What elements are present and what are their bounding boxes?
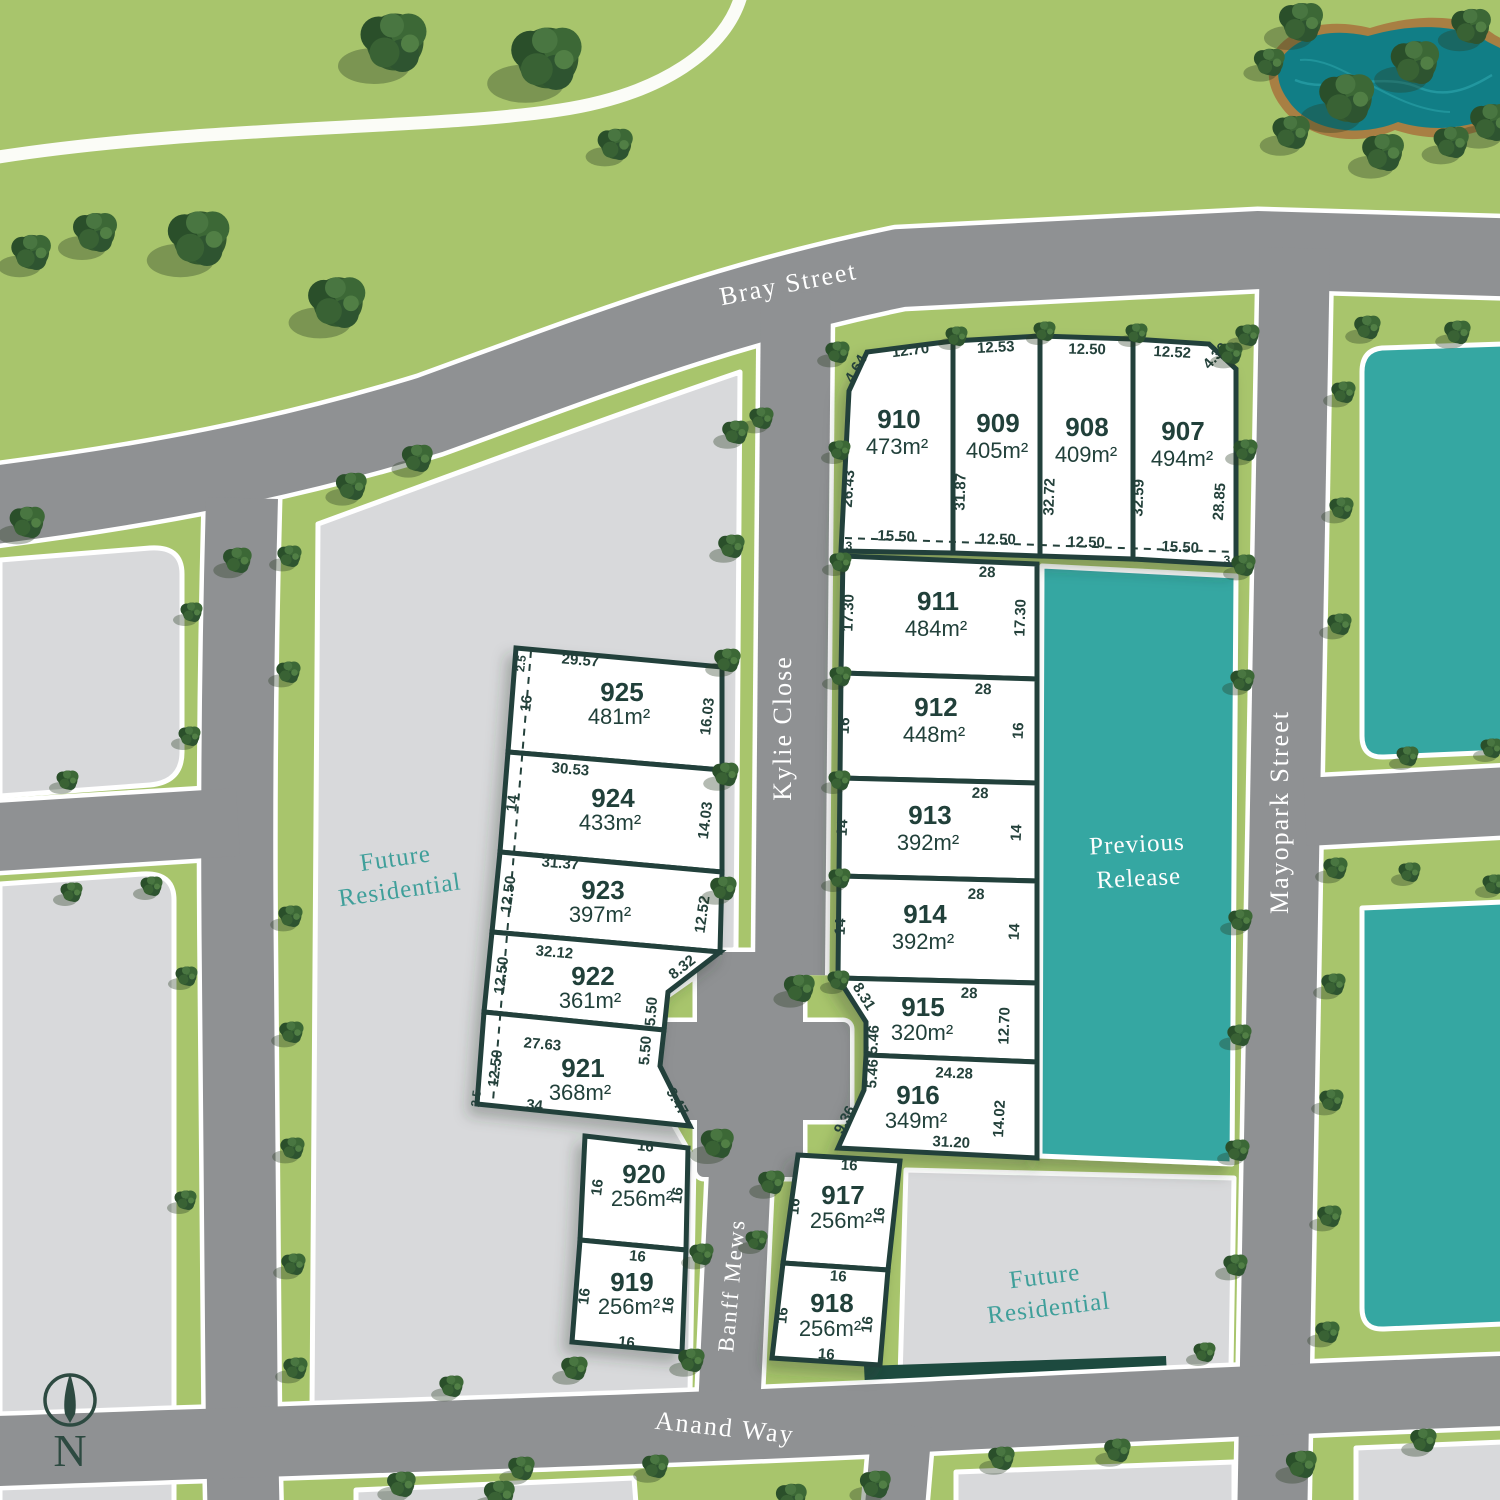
lot-dim: 28 [968, 886, 985, 904]
street-label-mayopark: Mayopark Street [1265, 710, 1294, 914]
lot-dim: 16 [575, 1287, 594, 1306]
road-west-branch [0, 822, 238, 838]
lot-924-area: 433m² [579, 810, 641, 835]
lot-dim: 16 [840, 1157, 858, 1175]
lot-dim: 34 [525, 1096, 544, 1115]
road-left [237, 498, 244, 1500]
lot-911-number: 911 [917, 586, 959, 616]
lot-923-area: 397m² [569, 902, 631, 927]
lot-915-area: 320m² [891, 1020, 953, 1045]
lot-dim: 16 [785, 1198, 803, 1216]
lot-914-area: 392m² [892, 929, 954, 954]
compass-n-label: N [53, 1425, 86, 1476]
lot-dim: 29.57 [561, 650, 600, 670]
lot-dim: 28 [972, 785, 989, 803]
lot-dim: 31.20 [932, 1133, 970, 1152]
zone-previous-release-line1: Previous [1089, 829, 1186, 861]
lot-dim: 12.70 [995, 1007, 1013, 1045]
lot-dim: 5.50 [636, 1035, 655, 1066]
lot-dim: 27.63 [523, 1034, 562, 1054]
masterplan-map: 907 494m² 12.52 4.30 32.59 28.85 15.50 3… [0, 0, 1500, 1500]
lot-dim: 30.53 [551, 759, 590, 779]
lot-dim: 28 [975, 681, 992, 699]
lot-919-number: 919 [610, 1267, 653, 1297]
lot-dim: 14 [1006, 922, 1024, 940]
lot-922-number: 922 [571, 961, 614, 991]
lot-dim: 16 [829, 1267, 847, 1285]
lot-dim: 16 [659, 1296, 678, 1315]
lot-908-area: 409m² [1055, 442, 1117, 467]
road-south-stub [893, 1425, 902, 1500]
lot-dim: 24.28 [935, 1064, 973, 1082]
lot-924-number: 924 [591, 783, 635, 813]
block-right-bottom [1362, 902, 1500, 1329]
block-left-top [0, 548, 182, 796]
lot-921-area: 368m² [549, 1080, 611, 1105]
lot-922-area: 361m² [559, 988, 621, 1013]
lot-dim: 12.50 [978, 531, 1016, 549]
lot-dim: 16 [773, 1306, 792, 1324]
lot-dim: 31.37 [541, 853, 580, 873]
lot-dim: 16 [858, 1315, 877, 1333]
lot-917-number: 917 [821, 1180, 864, 1210]
lot-918-number: 918 [810, 1288, 853, 1318]
lot-908-number: 908 [1065, 412, 1108, 442]
lot-914-number: 914 [903, 899, 947, 929]
lot-dim: 2.5 [513, 654, 529, 673]
lot-916-number: 916 [896, 1080, 939, 1110]
road-kylie-close [790, 292, 796, 975]
lot-925-area: 481m² [588, 704, 650, 729]
lot-925-number: 925 [600, 677, 643, 707]
lot-dim: 16 [668, 1186, 687, 1205]
lot-dim: 16 [628, 1247, 646, 1266]
lot-dim: 16 [870, 1207, 888, 1225]
lot-913-area: 392m² [897, 830, 959, 855]
lot-dim: 14 [834, 818, 852, 836]
lot-910-area: 473m² [866, 434, 928, 459]
lot-921-number: 921 [561, 1053, 604, 1083]
lot-dim: 12.50 [1068, 341, 1106, 359]
lot-dim: 5.46 [863, 1059, 882, 1089]
lot-dim: 17.30 [839, 594, 857, 632]
lot-dim: 32.12 [535, 942, 574, 962]
street-label-kylie: Kylie Close [768, 655, 797, 801]
lot-912-area: 448m² [903, 722, 965, 747]
lot-dim: 3 [846, 539, 853, 553]
lot-912-number: 912 [914, 692, 957, 722]
lot-dim: 5.50 [642, 996, 661, 1027]
lot-dim: 15.50 [877, 527, 915, 545]
lot-910-number: 910 [877, 404, 920, 434]
lot-dim: 14 [1008, 823, 1026, 841]
lot-909-area: 405m² [966, 438, 1028, 463]
lot-dim: 16 [517, 694, 536, 713]
lot-dim: 2.5 [468, 1089, 484, 1108]
lot-918-area: 256m² [799, 1316, 861, 1341]
lot-dim: 12.50 [1067, 534, 1105, 552]
lot-dim: 32.72 [1040, 478, 1058, 516]
lot-917-area: 256m² [810, 1208, 872, 1233]
lot-911-area: 484m² [905, 616, 967, 641]
lot-dim: 16 [817, 1345, 835, 1363]
lot-dim: 16 [836, 717, 854, 735]
lot-dim: 16 [636, 1137, 654, 1156]
lot-920-area: 256m² [611, 1186, 673, 1211]
lot-dim: 15.50 [1161, 538, 1199, 557]
lot-dim: 16 [1010, 722, 1028, 740]
lot-dim: 14.02 [990, 1100, 1009, 1138]
block-left-bottom [0, 874, 174, 1500]
lot-909-number: 909 [976, 408, 1019, 438]
lot-dim: 28 [979, 564, 996, 582]
lot-dim: 12.53 [977, 338, 1015, 357]
lot-dim: 28.85 [1210, 482, 1230, 521]
lot-919-area: 256m² [598, 1294, 660, 1319]
zone-previous-release-line2: Release [1096, 863, 1182, 894]
lot-907-area: 494m² [1151, 446, 1213, 471]
road-east-branch [1305, 800, 1500, 812]
lot-915-number: 915 [901, 992, 944, 1022]
lot-913-number: 913 [908, 800, 951, 830]
lot-dim: 3 [1224, 553, 1231, 567]
lot-dim: 16 [617, 1333, 635, 1352]
lot-dim: 31.87 [951, 473, 969, 511]
lot-dim: 14 [832, 917, 850, 935]
lot-dim: 32.59 [1129, 479, 1147, 517]
lot-920-number: 920 [622, 1159, 665, 1189]
lot-916-area: 349m² [885, 1108, 947, 1133]
lot-907-number: 907 [1161, 416, 1204, 446]
lot-dim: 26.43 [839, 469, 859, 508]
lot-dim: 17.30 [1011, 599, 1029, 637]
lot-923-number: 923 [581, 875, 624, 905]
lot-dim: 12.52 [1153, 343, 1191, 362]
block-right-top [1362, 344, 1500, 757]
lot-dim: 28 [961, 985, 978, 1003]
lot-dim: 16 [588, 1178, 607, 1197]
lot-dim: 5.46 [864, 1025, 883, 1055]
lot-dim: 14 [503, 793, 522, 813]
